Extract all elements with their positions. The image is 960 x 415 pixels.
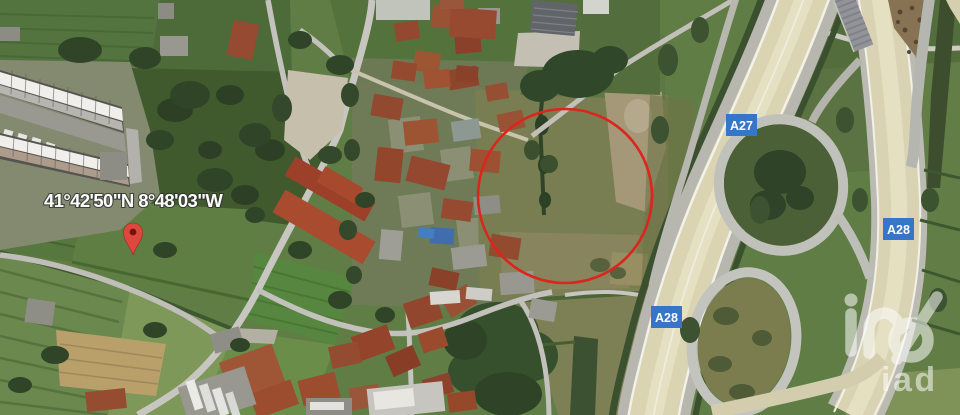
svg-text:A28: A28 bbox=[887, 223, 910, 237]
svg-text:A27: A27 bbox=[730, 119, 753, 133]
svg-text:iad: iad bbox=[881, 361, 938, 399]
svg-text:A28: A28 bbox=[655, 311, 678, 325]
svg-text:41°42'50"N 8°48'03"W: 41°42'50"N 8°48'03"W bbox=[44, 190, 223, 211]
